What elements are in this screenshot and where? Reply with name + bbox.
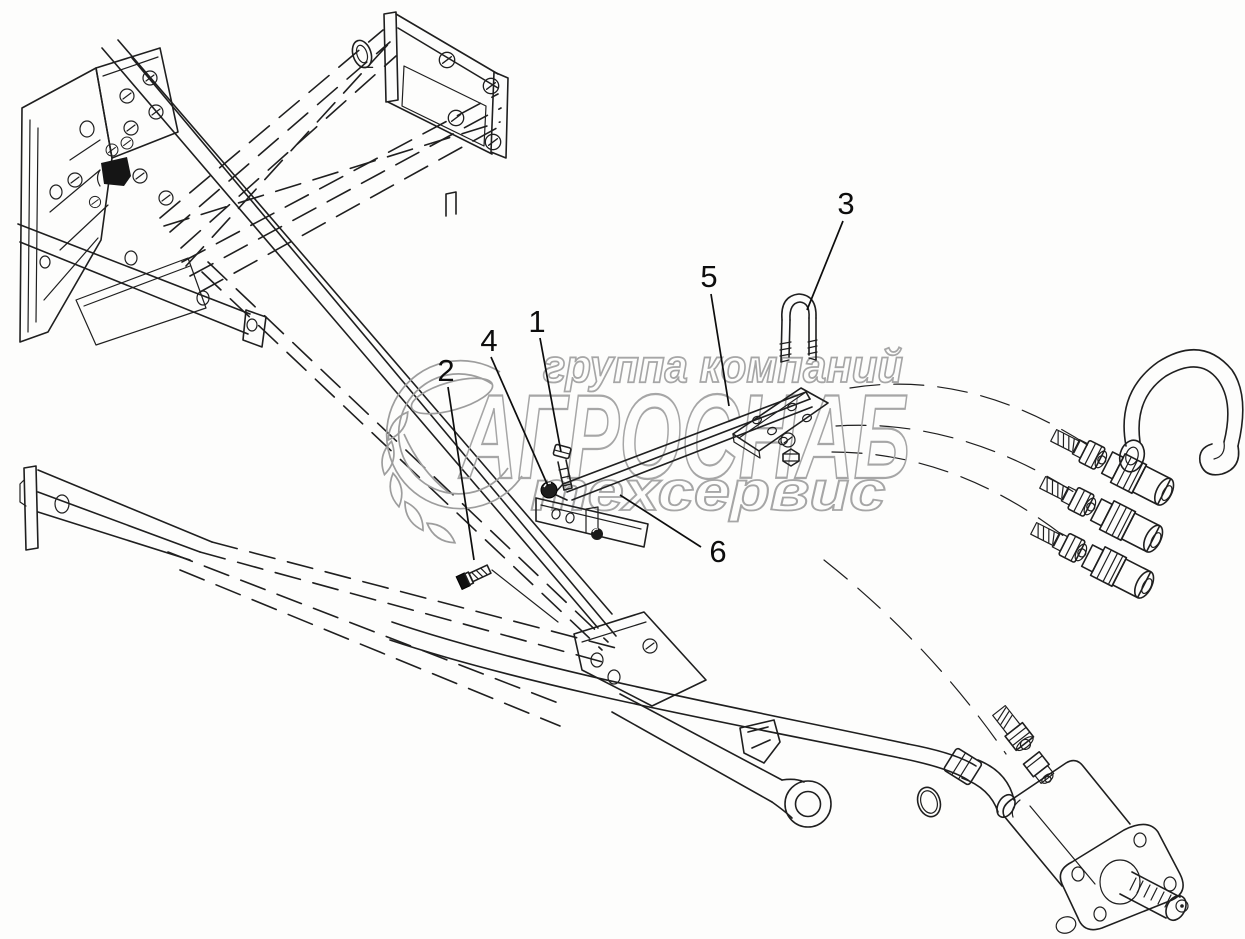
bolt-item2 bbox=[456, 563, 492, 590]
motor-flange bbox=[1060, 824, 1183, 929]
parts-diagram: группа компаний АГРОСНАБ техсервис bbox=[0, 0, 1245, 939]
drawbar-hitch bbox=[612, 694, 831, 827]
main-diagonal-beam bbox=[102, 40, 616, 650]
ring-clamp bbox=[349, 38, 375, 72]
callout-1: 1 bbox=[528, 304, 545, 339]
quick-coupler-1 bbox=[1046, 421, 1178, 509]
watermark-line3: техсервис bbox=[531, 459, 886, 522]
o-ring bbox=[914, 784, 944, 819]
right-mount-bracket bbox=[349, 12, 508, 158]
hitch-eye bbox=[785, 781, 831, 827]
watermark: группа компаний АГРОСНАБ техсервис bbox=[379, 340, 910, 547]
rear-mount-beam bbox=[160, 30, 504, 292]
nut-item4 bbox=[541, 482, 557, 498]
lower-frame-beam bbox=[20, 466, 616, 726]
straight-adapter-fitting bbox=[990, 704, 1037, 755]
clamp-block bbox=[101, 157, 131, 186]
callout-leader-3 bbox=[807, 221, 843, 310]
callout-6: 6 bbox=[709, 534, 726, 569]
coupler-holder-clip bbox=[1116, 350, 1243, 475]
callout-5: 5 bbox=[700, 259, 717, 294]
callout-3: 3 bbox=[837, 186, 854, 221]
callout-4: 4 bbox=[480, 323, 497, 358]
parts-diagram-page: группа компаний АГРОСНАБ техсервис bbox=[0, 0, 1245, 939]
hydraulic-motor bbox=[1003, 761, 1190, 936]
callout-2: 2 bbox=[437, 353, 454, 388]
quick-coupler-3 bbox=[1026, 514, 1158, 602]
nipple-adapter bbox=[1024, 752, 1058, 788]
